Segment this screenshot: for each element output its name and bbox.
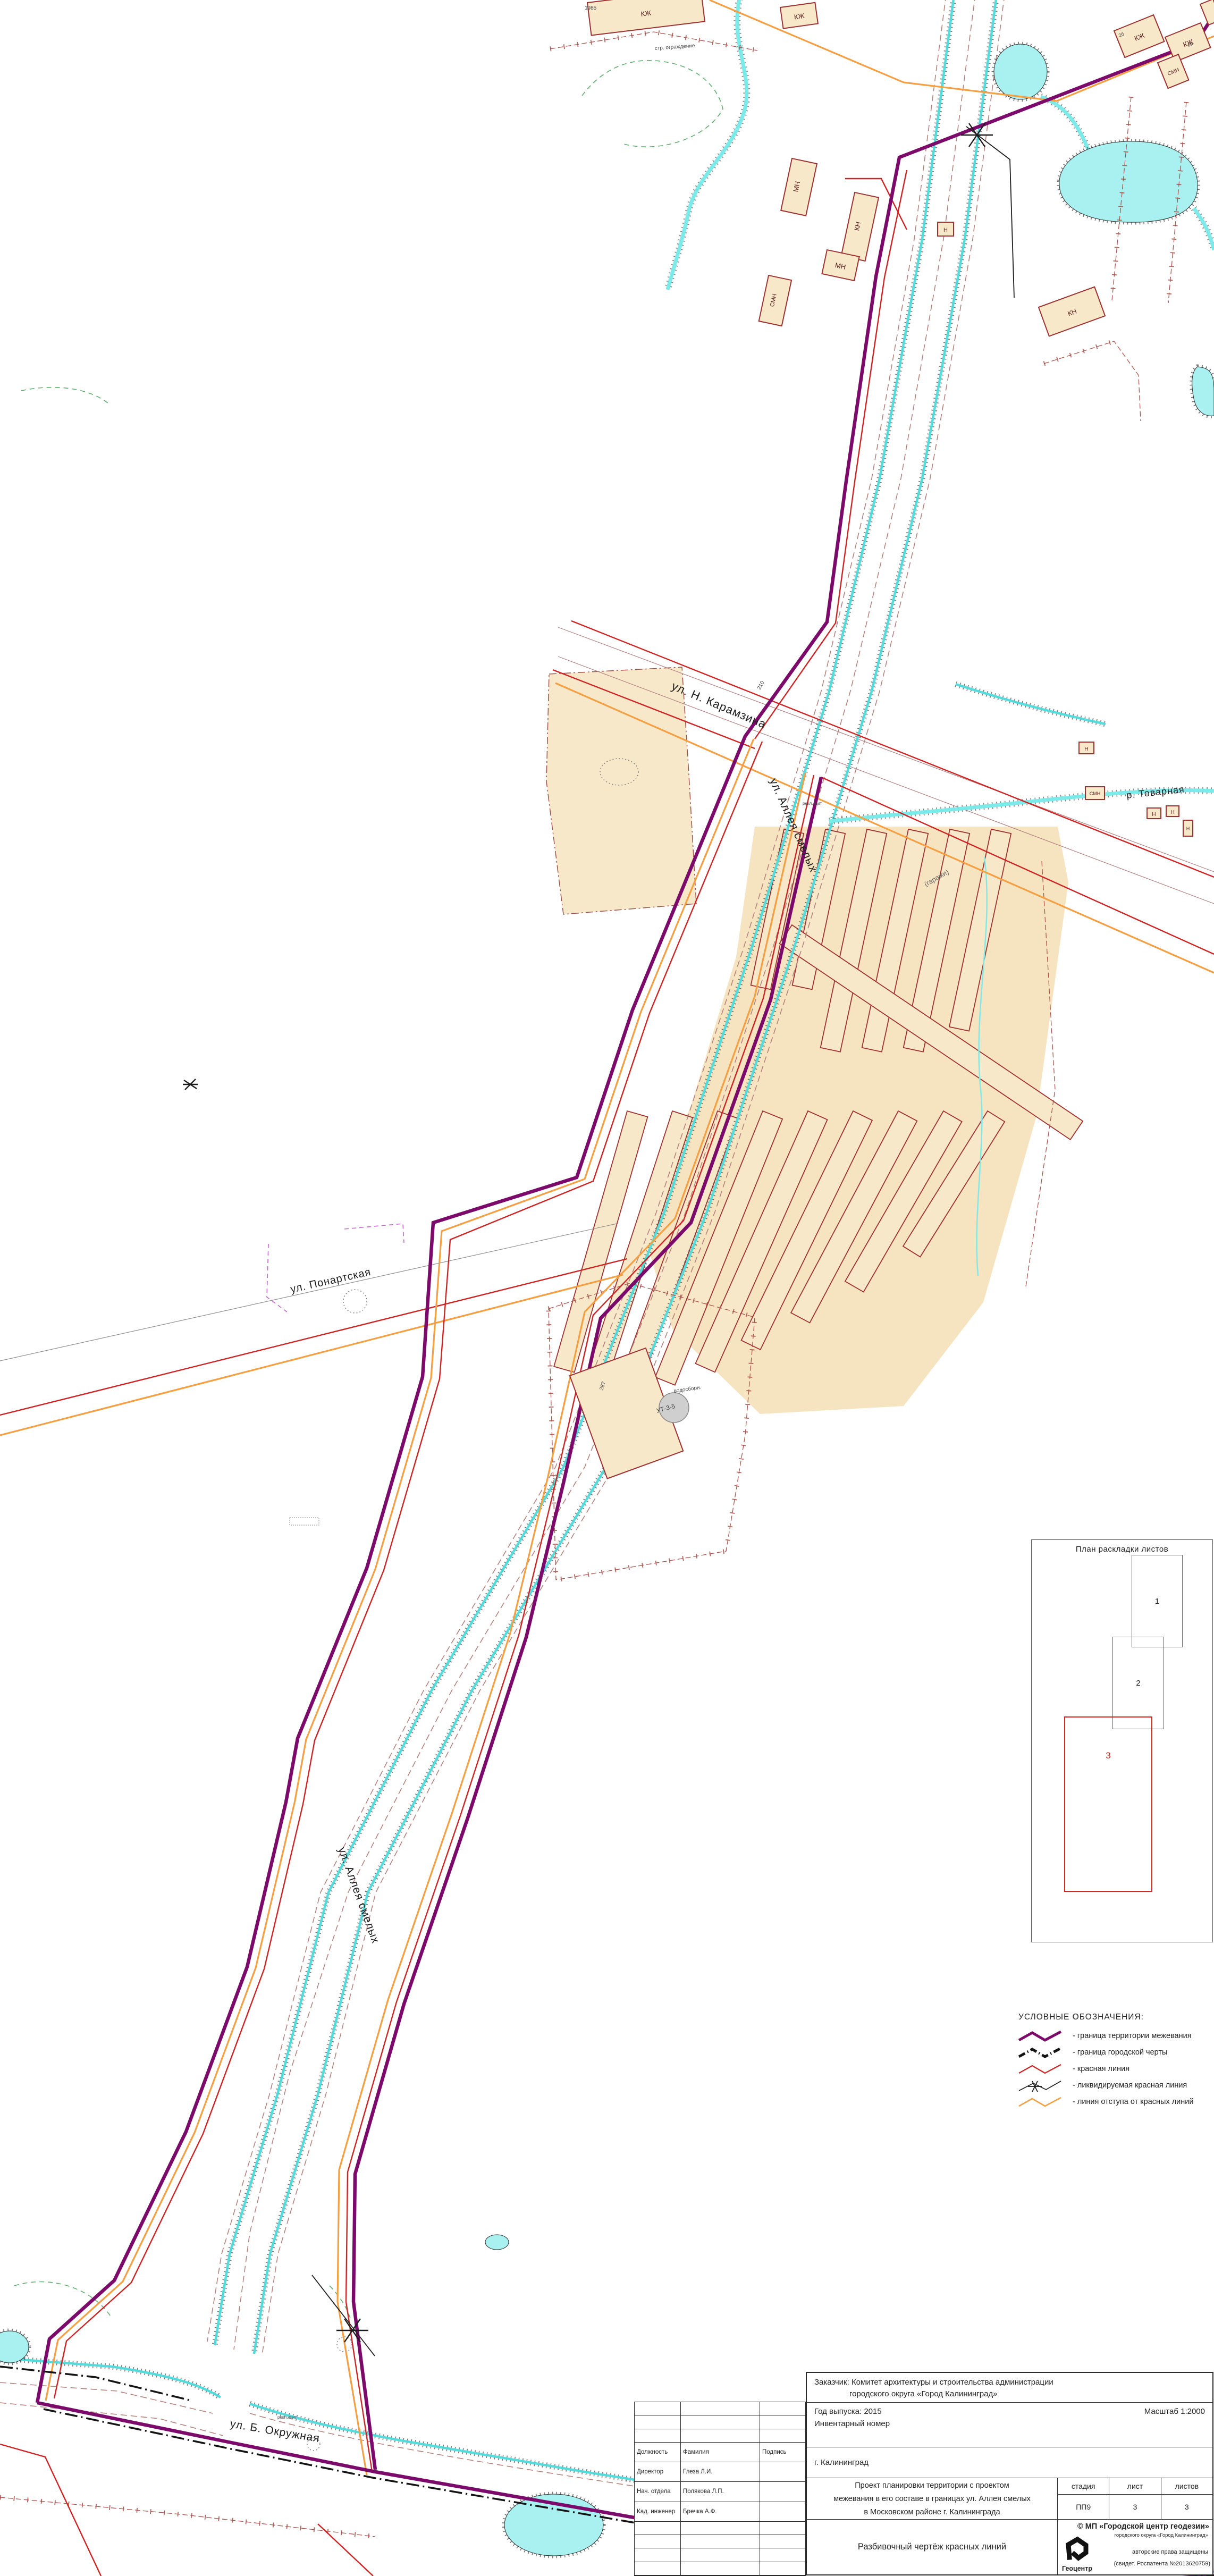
building-label: КЖ (640, 9, 652, 18)
sheet-outline-2: 2 (1112, 1637, 1164, 1729)
label-reklama-2: рекл. щит (277, 2415, 297, 2420)
staff-table: Должность Фамилия Подпись Директор Глеза… (634, 2402, 806, 2576)
staff-signature-cell (760, 2462, 806, 2482)
building-label: Н (943, 227, 948, 233)
sheet-layout-plan: План раскладки листов 1 2 3 (1031, 1539, 1213, 1942)
customer-line2: городского округа «Город Калининград» (814, 2388, 1212, 2400)
staff-name: Бречка А.Ф. (681, 2502, 760, 2522)
empty-cell (760, 2548, 806, 2562)
legend-label: - линия отступа от красных линий (1073, 2098, 1194, 2106)
sheet-value: 3 (1109, 2495, 1161, 2519)
staff-role: Нач. отдела (635, 2482, 681, 2502)
staff-role: Директор (635, 2462, 681, 2482)
staff-name: Полякова Л.П. (681, 2482, 760, 2502)
sheet-outline-3: 3 (1064, 1716, 1152, 1892)
empty-cell (635, 2522, 681, 2535)
drawing-title: Разбивочный чертёж красных линий (807, 2520, 1058, 2574)
sheet-number-2: 2 (1136, 1679, 1140, 1688)
legend-symbol-city-limit (1017, 2045, 1063, 2060)
org-name: © МП «Городской центр геодезии» (1077, 2522, 1209, 2531)
org-logo-text: Геоцентр (1062, 2565, 1092, 2572)
staff-header-name: Фамилия (681, 2443, 760, 2462)
empty-cell (681, 2562, 760, 2575)
project-cell: Проект планировки территории с проектом … (807, 2478, 1212, 2520)
empty-cell (635, 2562, 681, 2575)
org-cert: (свидет. Роспатента №2013620759) (1114, 2561, 1210, 2567)
sheet-number-3: 3 (1106, 1750, 1110, 1761)
stage-table: стадия лист листов ПП9 3 3 (1058, 2478, 1212, 2519)
empty-cell (681, 2429, 760, 2443)
customer-cell: Заказчик: Комитет архитектуры и строител… (807, 2373, 1212, 2403)
drawing-title-cell: Разбивочный чертёж красных линий © МП «Г… (807, 2520, 1212, 2574)
sheets-value: 3 (1161, 2495, 1212, 2519)
legend-symbol-red-line (1017, 2061, 1063, 2076)
project-line3: в Московском районе г. Калининграда (807, 2506, 1057, 2519)
staff-header-position: Должность (635, 2443, 681, 2462)
legend-label: - граница городской черты (1073, 2048, 1167, 2057)
red-lines (0, 0, 1214, 2576)
legend-item-liquidated: - ликвидируемая красная линия (1017, 2077, 1214, 2093)
legend-symbol-territory-boundary (1017, 2028, 1063, 2043)
legend-label: - ликвидируемая красная линия (1073, 2081, 1187, 2090)
road-ditches (0, 0, 1214, 2572)
project-line2: межевания в его составе в границах ул. А… (807, 2493, 1057, 2506)
empty-cell (681, 2402, 760, 2415)
drawing-page: КЖ КЖ КЖ КЖ МН КН МН СМН КН СМН Н Н СМН … (0, 0, 1214, 2576)
edition-cell: Год выпуска: 2015 Масштаб 1:2000 Инвента… (807, 2403, 1212, 2447)
label-1985: 1985 (585, 5, 597, 11)
river-label-tovarnaya: р. Товарная (1126, 784, 1185, 801)
empty-cell (681, 2415, 760, 2429)
stage-label: стадия (1058, 2478, 1109, 2494)
empty-cell (760, 2429, 806, 2443)
street-label-okruzhnaya: ул. Б. Окружная (229, 2418, 321, 2445)
empty-cell (760, 2402, 806, 2415)
customer-line1: Заказчик: Комитет архитектуры и строител… (814, 2377, 1212, 2388)
building-label: Н (1186, 826, 1190, 831)
staff-header-signature: Подпись (760, 2443, 806, 2462)
territory-boundary (0, 15, 1214, 2576)
garage-complex (554, 827, 1083, 1414)
staff-role: Кад. инженер (635, 2502, 681, 2522)
legend-item-city-limit: - граница городской черты (1017, 2044, 1214, 2060)
empty-cell (681, 2548, 760, 2562)
empty-cell (760, 2562, 806, 2575)
title-block: Заказчик: Комитет архитектуры и строител… (806, 2372, 1213, 2575)
empty-cell (681, 2522, 760, 2535)
building-label: Н (1170, 810, 1174, 815)
org-rights: авторские права защищены (1132, 2549, 1208, 2555)
empty-cell (681, 2535, 760, 2548)
empty-cell (635, 2402, 681, 2415)
legend: УСЛОВНЫЕ ОБОЗНАЧЕНИЯ: - граница территор… (1010, 2010, 1214, 2114)
project-line1: Проект планировки территории с проектом (807, 2479, 1057, 2493)
staff-name: Глеза Л.И. (681, 2462, 760, 2482)
empty-cell (760, 2415, 806, 2429)
empty-cell (760, 2535, 806, 2548)
sheets-label: листов (1161, 2478, 1212, 2494)
building-label: Н (1152, 812, 1156, 818)
city-name: г. Калининград (814, 2458, 869, 2467)
label-reklama-1: рекл. щит (803, 801, 822, 806)
staff-signature-cell (760, 2502, 806, 2522)
stage-value-row: ПП9 3 3 (1058, 2495, 1212, 2519)
label-210: 210 (756, 680, 766, 691)
land-parcel-area (546, 667, 696, 914)
legend-item-mezhevanie: - граница территории межевания (1017, 2027, 1214, 2044)
water-features (0, 0, 1214, 2556)
empty-cell (635, 2415, 681, 2429)
sheet-number-1: 1 (1155, 1597, 1159, 1606)
legend-symbol-offset-line (1017, 2094, 1063, 2109)
org-subname: городского округа «Город Калининград» (1115, 2532, 1208, 2538)
legend-title: УСЛОВНЫЕ ОБОЗНАЧЕНИЯ: (1018, 2013, 1214, 2022)
sheet-plan-title: План раскладки листов (1032, 1540, 1212, 1554)
legend-item-offset: - линия отступа от красных линий (1017, 2093, 1214, 2110)
legend-item-red-line: - красная линия (1017, 2060, 1214, 2077)
empty-cell (635, 2535, 681, 2548)
stage-header-row: стадия лист листов (1058, 2478, 1212, 2495)
legend-label: - граница территории межевания (1073, 2032, 1192, 2040)
map-scale: Масштаб 1:2000 (1144, 2407, 1205, 2416)
label-ograzhdenie: стр. ограждение (654, 43, 695, 52)
legend-label: - красная линия (1073, 2065, 1129, 2073)
building-label: КЖ (794, 12, 805, 21)
map-canvas: КЖ КЖ КЖ КЖ МН КН МН СМН КН СМН Н Н СМН … (0, 0, 1214, 2576)
legend-symbol-liquidated-red-line (1017, 2078, 1063, 2093)
city-cell: г. Калининград (807, 2447, 1212, 2478)
geocentr-logo-icon (1063, 2536, 1090, 2563)
empty-cell (760, 2522, 806, 2535)
stage-value: ПП9 (1058, 2495, 1109, 2519)
sheet-outline-1: 1 (1132, 1555, 1183, 1647)
sheet-label: лист (1109, 2478, 1161, 2494)
project-name: Проект планировки территории с проектом … (807, 2478, 1058, 2519)
label-vodosborn: водосборн. (673, 1384, 702, 1394)
inventory-number: Инвентарный номер (814, 2419, 1205, 2428)
building-label: СМН (1090, 791, 1100, 796)
empty-cell (635, 2548, 681, 2562)
staff-signature-cell (760, 2482, 806, 2502)
building-label: Н (1084, 746, 1088, 752)
empty-cell (635, 2429, 681, 2443)
organization-cell: © МП «Городской центр геодезии» городско… (1058, 2520, 1212, 2574)
